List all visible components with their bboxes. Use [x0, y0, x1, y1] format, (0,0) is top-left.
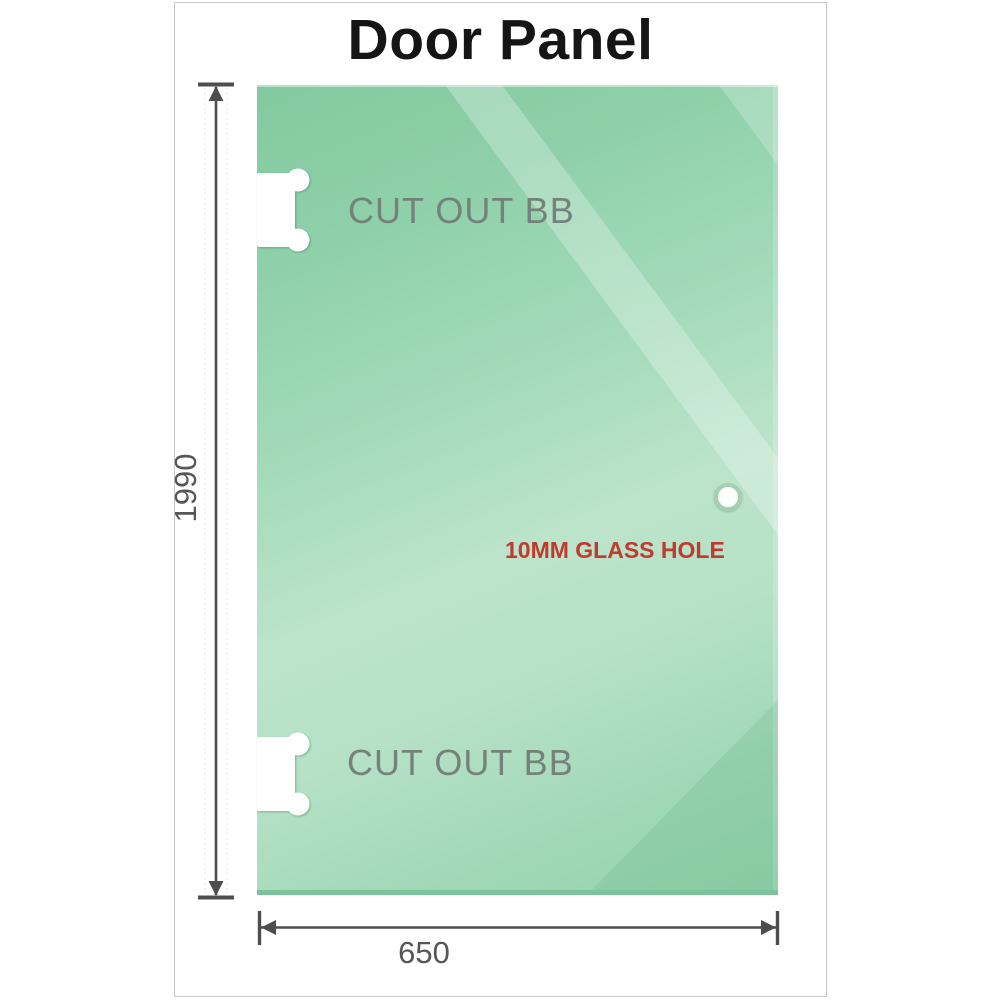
hinge-cutout-bottom	[257, 730, 311, 818]
glass-hole	[714, 483, 742, 511]
width-dimension-label: 650	[374, 937, 474, 968]
width-dimension-arrow	[253, 908, 783, 952]
cutout-label-bottom: CUT OUT BB	[347, 745, 574, 781]
hinge-cutout-top	[257, 166, 311, 254]
height-dimension-label: 1990	[169, 428, 203, 548]
glass-hole-label: 10MM GLASS HOLE	[505, 537, 715, 563]
page-title: Door Panel	[174, 12, 827, 69]
cutout-label-top: CUT OUT BB	[348, 193, 575, 229]
door-panel-drawing: Door Panel CUT OUT BB CUT OUT BB 10MM GL…	[0, 0, 1000, 1000]
